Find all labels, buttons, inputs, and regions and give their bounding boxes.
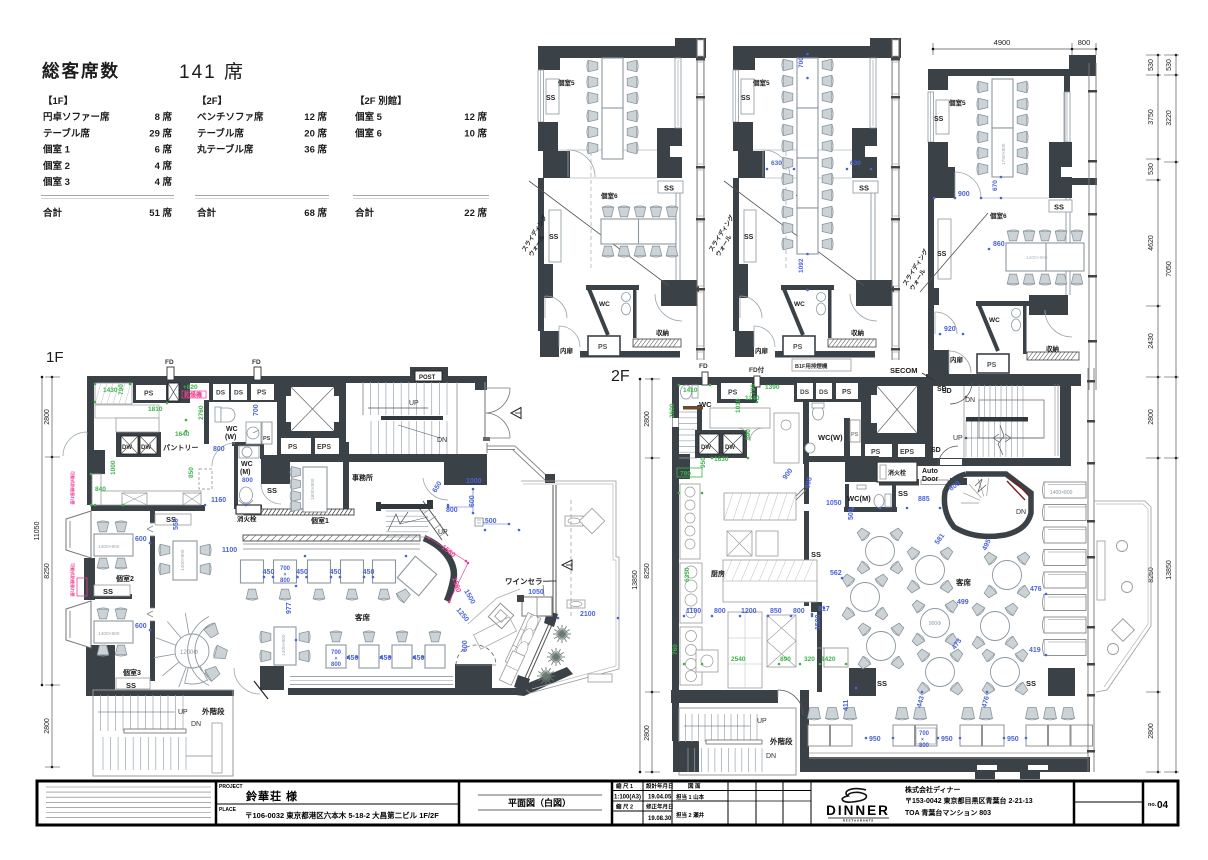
svg-text:SS: SS [898, 489, 908, 498]
svg-text:1050: 1050 [826, 500, 842, 507]
svg-text:DW: DW [141, 445, 151, 451]
svg-text:2800: 2800 [644, 725, 651, 741]
svg-text:縮 尺 1: 縮 尺 1 [616, 782, 633, 790]
svg-text:内扉: 内扉 [950, 355, 964, 364]
svg-text:DS: DS [234, 390, 244, 397]
svg-text:1750×800: 1750×800 [1001, 143, 1007, 165]
svg-text:850: 850 [770, 608, 782, 615]
svg-text:SS: SS [549, 234, 559, 241]
svg-text:8250: 8250 [1148, 567, 1155, 583]
svg-text:個室6: 個室6 [600, 191, 618, 200]
svg-text:600: 600 [135, 623, 147, 630]
svg-text:1500: 1500 [815, 614, 822, 630]
svg-text:UP: UP [953, 435, 963, 442]
svg-text:2760: 2760 [198, 405, 205, 420]
svg-text:SS: SS [267, 486, 277, 495]
svg-text:収納: 収納 [851, 328, 865, 337]
svg-text:2800: 2800 [44, 718, 51, 734]
svg-text:DS: DS [819, 389, 829, 396]
svg-text:476: 476 [1030, 586, 1042, 593]
svg-text:800: 800 [280, 578, 291, 584]
svg-text:UP: UP [178, 709, 188, 716]
svg-text:1092: 1092 [798, 258, 805, 273]
svg-text:担当 1 山本: 担当 1 山本 [676, 793, 705, 801]
svg-text:(M): (M) [240, 469, 251, 476]
svg-text:1400×800: 1400×800 [1050, 490, 1073, 496]
svg-text:4 席: 4 席 [155, 176, 173, 188]
svg-text:テーブル席: テーブル席 [43, 127, 90, 139]
svg-text:SS: SS [934, 116, 944, 123]
svg-text:PS: PS [987, 362, 997, 369]
svg-text:丸テーブル席: 丸テーブル席 [196, 144, 254, 156]
svg-text:1640: 1640 [175, 431, 190, 438]
svg-text:790: 790 [118, 384, 125, 395]
svg-text:950: 950 [869, 736, 881, 743]
svg-text:22 席: 22 席 [464, 207, 487, 219]
svg-text:DW: DW [122, 445, 132, 451]
svg-text:合計: 合計 [197, 207, 217, 219]
svg-text:ベンチソファ席: ベンチソファ席 [197, 111, 264, 123]
svg-text:DN: DN [191, 721, 201, 728]
svg-text:1000: 1000 [110, 460, 117, 475]
svg-text:68 席: 68 席 [304, 207, 327, 219]
svg-text:DN: DN [437, 437, 447, 444]
svg-text:【2F 別館】: 【2F 別館】 [355, 95, 407, 107]
svg-text:1410: 1410 [683, 387, 698, 394]
svg-text:900: 900 [958, 191, 970, 198]
svg-text:個室5: 個室5 [752, 78, 770, 87]
svg-text:パントリー: パントリー [163, 443, 198, 452]
svg-text:800: 800 [714, 608, 726, 615]
svg-text:13850: 13850 [1166, 560, 1173, 580]
svg-text:PS: PS [598, 344, 608, 351]
svg-text:ワインセラー: ワインセラー [505, 577, 550, 586]
svg-text:B1F用排煙機: B1F用排煙機 [795, 362, 828, 370]
svg-text:事務所: 事務所 [352, 473, 373, 482]
svg-text:消火栓: 消火栓 [888, 469, 906, 477]
svg-text:600: 600 [135, 536, 147, 543]
svg-text:UP: UP [438, 529, 448, 536]
svg-text:2800: 2800 [644, 411, 651, 427]
svg-text:13850: 13850 [632, 570, 639, 590]
svg-text:個室3: 個室3 [122, 668, 141, 677]
svg-text:600: 600 [462, 640, 469, 652]
svg-text:PS: PS [871, 449, 881, 456]
svg-text:1F: 1F [46, 349, 64, 366]
svg-text:600: 600 [469, 495, 476, 507]
svg-text:PLACE: PLACE [219, 807, 237, 813]
svg-text:縮 尺 2: 縮 尺 2 [616, 803, 633, 811]
svg-text:PS: PS [851, 432, 859, 438]
svg-text:141 席: 141 席 [179, 61, 245, 83]
svg-text:950: 950 [1007, 736, 1019, 743]
svg-text:SS: SS [1054, 203, 1064, 212]
svg-text:WC(M): WC(M) [847, 494, 871, 503]
svg-text:【1F】: 【1F】 [43, 95, 73, 107]
svg-text:7050: 7050 [1166, 261, 1173, 277]
svg-text:PS: PS [257, 390, 267, 397]
svg-text:1400×800: 1400×800 [98, 544, 120, 550]
svg-text:04: 04 [1157, 800, 1169, 811]
svg-text:1100: 1100 [686, 608, 701, 615]
svg-text:2600: 2600 [669, 403, 676, 418]
svg-text:DW: DW [725, 445, 735, 451]
svg-text:419: 419 [1029, 647, 1041, 654]
svg-text:担当 2 瀬井: 担当 2 瀬井 [676, 811, 705, 819]
svg-text:860: 860 [993, 241, 1005, 248]
svg-text:WC: WC [241, 461, 253, 468]
svg-text:POST: POST [419, 375, 436, 381]
svg-text:1050: 1050 [528, 589, 544, 596]
svg-text:8250: 8250 [44, 563, 51, 579]
svg-text:個室1: 個室1 [310, 516, 329, 525]
svg-text:消火栓: 消火栓 [237, 514, 257, 523]
svg-text:個室6: 個室6 [989, 211, 1007, 220]
svg-text:FD付: FD付 [749, 365, 765, 374]
svg-text:920: 920 [944, 326, 956, 333]
svg-text:2F: 2F [611, 368, 630, 385]
svg-text:6 席: 6 席 [155, 144, 173, 156]
svg-text:670: 670 [992, 180, 999, 191]
svg-text:630: 630 [850, 160, 861, 167]
svg-text:4620: 4620 [1148, 235, 1155, 251]
svg-text:2430: 2430 [1148, 333, 1155, 349]
svg-text:19.04.05: 19.04.05 [648, 795, 672, 801]
svg-text:外階段: 外階段 [202, 706, 225, 716]
svg-text:FD: FD [699, 363, 708, 370]
svg-text:収納: 収納 [656, 328, 670, 337]
svg-text:【2F】: 【2F】 [197, 95, 227, 107]
svg-text:個室 6: 個室 6 [354, 127, 382, 139]
svg-text:950: 950 [700, 457, 707, 468]
svg-text:700: 700 [798, 57, 805, 68]
svg-text:テーブル席: テーブル席 [197, 127, 244, 139]
svg-text:885: 885 [918, 496, 930, 503]
svg-text:DS: DS [800, 389, 810, 396]
svg-text:PS: PS [263, 436, 271, 442]
svg-text:977: 977 [286, 602, 293, 614]
svg-text:500: 500 [848, 508, 855, 520]
svg-text:Auto: Auto [922, 468, 938, 475]
svg-text:内扉: 内扉 [560, 346, 574, 355]
svg-text:11050: 11050 [34, 521, 41, 540]
svg-text:530: 530 [1148, 163, 1155, 175]
svg-text:1810: 1810 [148, 406, 163, 413]
svg-text:12 席: 12 席 [304, 111, 327, 123]
svg-text:PS: PS [288, 444, 298, 451]
svg-text:客席: 客席 [955, 577, 971, 587]
svg-text:790: 790 [750, 384, 757, 395]
svg-text:19.08.30: 19.08.30 [648, 816, 672, 822]
svg-text:1430: 1430 [103, 387, 118, 394]
svg-text:FD: FD [252, 359, 261, 366]
svg-text:800: 800 [745, 429, 752, 440]
svg-text:2540: 2540 [731, 656, 746, 663]
svg-text:2800: 2800 [44, 409, 51, 425]
svg-text:450: 450 [330, 569, 342, 576]
svg-text:可動式防煙垂れ壁: 可動式防煙垂れ壁 [69, 471, 76, 505]
svg-text:客席: 客席 [354, 612, 370, 622]
svg-text:SS: SS [126, 681, 136, 690]
svg-text:2800: 2800 [1148, 723, 1155, 739]
svg-text:900Φ: 900Φ [929, 621, 941, 627]
svg-text:530: 530 [1166, 59, 1173, 71]
svg-text:可動式防煙垂れ壁: 可動式防煙垂れ壁 [69, 563, 76, 597]
svg-text:PS: PS [842, 389, 852, 396]
svg-text:1400×800: 1400×800 [98, 631, 120, 637]
svg-text:円卓ソファー席: 円卓ソファー席 [43, 111, 110, 123]
svg-text:2800: 2800 [1148, 409, 1155, 425]
svg-text:36 席: 36 席 [304, 144, 327, 156]
svg-text:SD: SD [931, 447, 941, 454]
svg-text:SS: SS [937, 251, 947, 258]
svg-text:WC: WC [226, 426, 238, 433]
svg-text:DN: DN [766, 753, 776, 760]
svg-text:DINNER: DINNER [826, 803, 890, 818]
svg-text:FD: FD [165, 359, 174, 366]
svg-text:411: 411 [843, 700, 850, 711]
svg-text:外階段: 外階段 [770, 736, 793, 746]
svg-text:EPS: EPS [900, 449, 914, 456]
svg-text:UP: UP [409, 400, 419, 407]
svg-text:(W): (W) [225, 434, 236, 441]
svg-text:個室 3: 個室 3 [42, 176, 70, 188]
svg-text:図 面: 図 面 [688, 782, 701, 790]
svg-text:1010: 1010 [735, 398, 742, 413]
svg-text:R E S T A U R A N T S: R E S T A U R A N T S [843, 819, 874, 823]
svg-text:個室5: 個室5 [557, 78, 575, 87]
svg-text:6350: 6350 [684, 567, 691, 582]
svg-text:平面図（白図）: 平面図（白図） [508, 797, 571, 808]
svg-text:収納: 収納 [1046, 344, 1060, 353]
svg-text:UP: UP [757, 718, 767, 725]
svg-text:1420: 1420 [821, 656, 836, 663]
svg-text:DW: DW [701, 445, 711, 451]
svg-text:DN: DN [1016, 509, 1026, 516]
svg-text:450: 450 [263, 569, 275, 576]
svg-text:530: 530 [1148, 59, 1155, 71]
svg-text:株式会社ディナー: 株式会社ディナー [905, 785, 961, 794]
svg-text:設計年月日: 設計年月日 [646, 782, 674, 790]
svg-text:SS: SS [103, 587, 113, 596]
svg-text:個室5: 個室5 [948, 98, 966, 107]
svg-text:800: 800 [242, 477, 253, 484]
svg-text:3220: 3220 [1166, 110, 1173, 126]
svg-text:SS: SS [811, 550, 821, 559]
svg-text:1100: 1100 [222, 547, 237, 554]
svg-text:PS: PS [728, 390, 738, 397]
svg-text:450: 450 [296, 569, 308, 576]
svg-text:〒153-0042 東京都目黒区青葉台 2-21-13: 〒153-0042 東京都目黒区青葉台 2-21-13 [905, 796, 1033, 805]
svg-text:1400×800: 1400×800 [1026, 255, 1048, 261]
svg-text:SS: SS [546, 95, 556, 102]
svg-text:SS: SS [1026, 679, 1036, 688]
svg-text:TOA 青葉台マンション 803: TOA 青葉台マンション 803 [905, 808, 991, 817]
svg-text:1800×800: 1800×800 [310, 478, 316, 500]
svg-text:499: 499 [957, 599, 969, 606]
svg-text:SS: SS [859, 184, 869, 193]
svg-text:鈴華荘 様: 鈴華荘 様 [246, 789, 298, 803]
svg-text:550: 550 [173, 518, 180, 530]
svg-text:総客席数: 総客席数 [42, 61, 120, 81]
svg-text:DS: DS [216, 390, 226, 397]
svg-text:SS: SS [877, 679, 887, 688]
svg-text:個室 1: 個室 1 [42, 144, 71, 156]
svg-text:8250: 8250 [644, 563, 651, 579]
svg-text:SS: SS [741, 95, 751, 102]
svg-text:320: 320 [804, 656, 815, 663]
svg-text:3750: 3750 [1148, 109, 1155, 125]
svg-text:800: 800 [213, 446, 225, 453]
svg-text:+820: +820 [183, 384, 198, 391]
svg-text:800: 800 [793, 608, 805, 615]
svg-text:20 席: 20 席 [304, 127, 327, 139]
svg-text:個室 5: 個室 5 [354, 111, 383, 123]
svg-text:合計: 合計 [43, 207, 63, 219]
svg-text:840: 840 [95, 486, 106, 493]
svg-text:51 席: 51 席 [149, 207, 172, 219]
svg-text:700: 700 [253, 404, 260, 416]
svg-text:EPS: EPS [317, 444, 331, 451]
svg-text:SS: SS [664, 184, 674, 193]
svg-text:1390: 1390 [765, 384, 780, 391]
svg-text:630: 630 [771, 160, 782, 167]
svg-text:890: 890 [780, 656, 791, 663]
svg-text:内扉: 内扉 [755, 346, 769, 355]
svg-text:WC(W): WC(W) [818, 433, 843, 442]
svg-text:PS: PS [793, 344, 803, 351]
svg-text:800: 800 [331, 662, 342, 668]
svg-text:Door: Door [922, 476, 939, 483]
svg-text:SECOM: SECOM [890, 366, 918, 375]
svg-text:個室2: 個室2 [115, 574, 134, 583]
svg-text:1000: 1000 [466, 478, 482, 485]
svg-text:4900: 4900 [994, 38, 1011, 47]
svg-text:950: 950 [941, 736, 953, 743]
svg-text:PROJECT: PROJECT [219, 784, 243, 790]
svg-text:12 席: 12 席 [464, 111, 487, 123]
svg-text:WC: WC [794, 301, 805, 308]
svg-text:562: 562 [830, 570, 842, 577]
svg-text:合計: 合計 [355, 207, 375, 219]
svg-text:450: 450 [363, 569, 375, 576]
svg-text:no.: no. [1148, 802, 1157, 808]
svg-text:850: 850 [188, 467, 195, 478]
svg-text:〒106-0032 東京都港区六本木 5-18-2 大昌第: 〒106-0032 東京都港区六本木 5-18-2 大昌第二ビル 1F/2F [245, 810, 439, 820]
svg-text:1400×800: 1400×800 [180, 549, 186, 571]
svg-text:1200: 1200 [741, 608, 757, 615]
svg-text:800: 800 [919, 743, 930, 749]
svg-text:29 席: 29 席 [149, 127, 172, 139]
svg-text:個室 2: 個室 2 [42, 160, 70, 172]
svg-text:10 席: 10 席 [464, 127, 487, 139]
svg-text:WC: WC [599, 301, 610, 308]
svg-text:780: 780 [680, 471, 691, 478]
svg-text:1:100(A3): 1:100(A3) [614, 795, 641, 801]
svg-text:SD: SD [942, 388, 952, 395]
svg-text:4 席: 4 席 [155, 160, 173, 172]
svg-text:厨房: 厨房 [711, 569, 725, 578]
svg-text:1200Φ: 1200Φ [180, 650, 198, 656]
svg-text:760: 760 [672, 644, 679, 655]
svg-text:1630: 1630 [714, 456, 729, 463]
svg-text:8 席: 8 席 [155, 111, 173, 123]
svg-text:WC: WC [989, 317, 1000, 324]
svg-text:修正年月日: 修正年月日 [645, 803, 674, 811]
svg-text:1160: 1160 [211, 497, 226, 504]
svg-text:1400×800: 1400×800 [281, 634, 287, 656]
svg-text:800: 800 [1078, 38, 1091, 47]
svg-text:PS: PS [144, 391, 154, 398]
svg-text:2100: 2100 [580, 611, 596, 618]
svg-text:SS: SS [744, 234, 754, 241]
